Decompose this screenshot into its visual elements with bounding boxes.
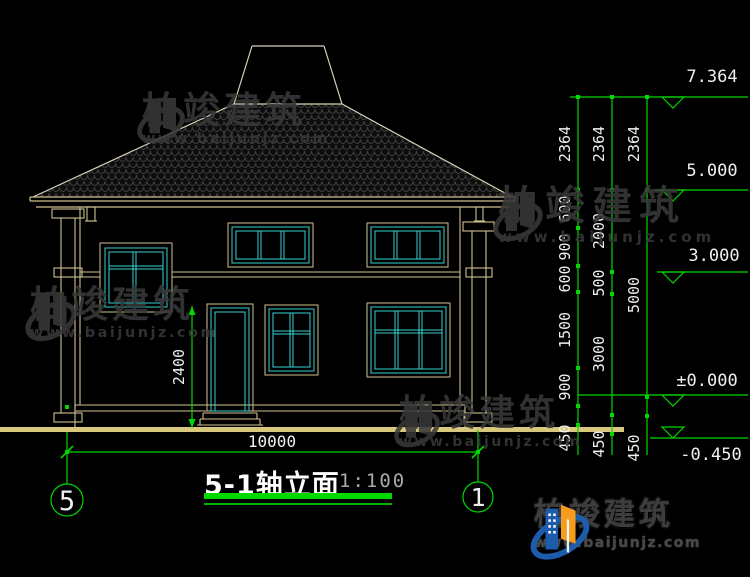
watermark-logo-icon xyxy=(136,92,186,146)
right-column-band xyxy=(466,268,492,277)
lower-window-right xyxy=(367,303,450,377)
watermark-logo-icon xyxy=(24,286,78,344)
elevation-zero: ±0.000 xyxy=(676,371,737,391)
elevation-ridge: 7.364 xyxy=(686,67,737,87)
watermark-logo-icon xyxy=(393,396,441,452)
level-symbol-7364 xyxy=(662,97,684,108)
chain2-seg2: 500 xyxy=(590,269,608,296)
right-capital xyxy=(463,222,494,231)
watermark-right: 柏竣建筑 www.baijunjz.com xyxy=(492,186,715,246)
chain3-seg0: 2364 xyxy=(625,126,643,162)
total-width-label: 10000 xyxy=(248,432,296,451)
left-column-band xyxy=(54,268,82,277)
left-eave-pendant xyxy=(87,207,95,221)
watermark-logo-icon xyxy=(492,186,544,246)
brand-logo: 柏竣建筑 www.baijunjz.com xyxy=(526,496,701,551)
left-column-base xyxy=(54,413,82,422)
watermark-bottom: 柏竣建筑 www.baijunjz.com xyxy=(393,396,582,450)
door-height-label: 2400 xyxy=(170,349,188,385)
floor-band xyxy=(80,272,460,277)
upper-window-center xyxy=(228,223,313,267)
watermark-top: 柏竣建筑 www.baijunjz.com xyxy=(136,92,330,147)
title-underline-thin xyxy=(204,503,392,505)
axis-bubble-left-number: 5 xyxy=(59,486,75,517)
level-symbol-0000 xyxy=(662,395,684,406)
chain2-seg0: 2364 xyxy=(590,126,608,162)
brand-logo-icon xyxy=(526,496,594,566)
cad-elevation-canvas: 7.364 5.000 3.000 ±0.000 -0.450 2364 600… xyxy=(0,0,750,577)
title-underline-thick xyxy=(204,493,392,499)
chain2-seg3: 3000 xyxy=(590,336,608,372)
elevation-second-floor: 5.000 xyxy=(686,161,737,181)
lower-window-left xyxy=(265,305,318,375)
left-capital xyxy=(52,209,84,218)
entry-steps xyxy=(197,413,263,425)
right-column xyxy=(463,207,494,422)
eave-band xyxy=(30,197,515,207)
chain3-seg1: 5000 xyxy=(625,277,643,313)
chain1-seg0: 2364 xyxy=(556,126,574,162)
upper-window-right xyxy=(367,223,448,267)
drawing-scale: 1:100 xyxy=(339,470,406,492)
elevation-mid: 3.000 xyxy=(688,246,739,266)
watermark-left: 柏竣建筑 www.baijunjz.com xyxy=(24,286,218,341)
chain1-seg3: 600 xyxy=(556,265,574,292)
level-symbol-3000 xyxy=(662,272,684,283)
elevation-site: -0.450 xyxy=(680,445,741,465)
chain1-seg4: 1500 xyxy=(556,312,574,348)
axis-bubble-right-number: 1 xyxy=(470,483,485,512)
level-symbol-neg0450 xyxy=(662,427,684,438)
chain2-seg4: 450 xyxy=(590,430,608,457)
right-eave-pendant xyxy=(476,207,483,221)
chain3-seg2: 450 xyxy=(625,434,643,461)
